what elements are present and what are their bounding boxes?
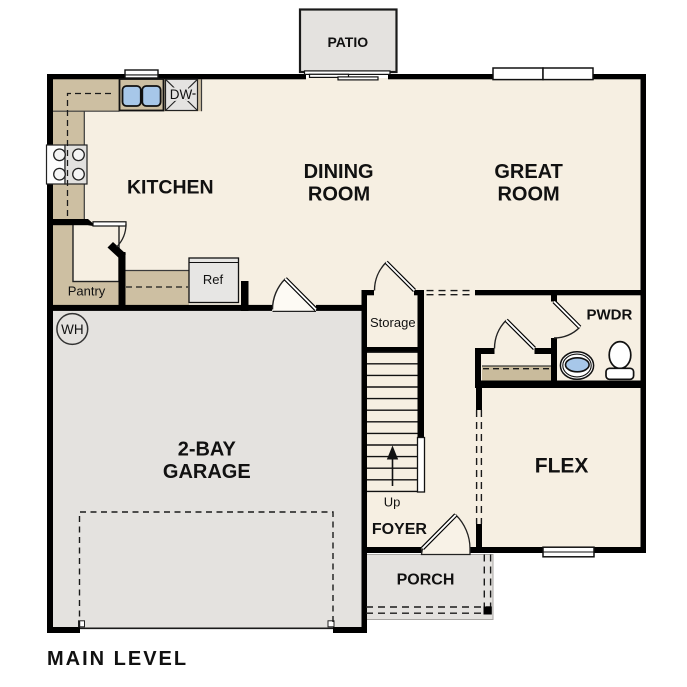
svg-text:FLEX: FLEX [535, 455, 589, 478]
svg-text:GREAT: GREAT [494, 161, 563, 183]
svg-text:Ref: Ref [203, 272, 224, 287]
svg-text:PORCH: PORCH [397, 572, 455, 589]
svg-text:DW: DW [170, 87, 193, 102]
svg-text:WH: WH [61, 322, 84, 337]
svg-text:PWDR: PWDR [586, 307, 632, 324]
svg-text:KITCHEN: KITCHEN [127, 177, 214, 199]
svg-text:2-BAY: 2-BAY [178, 439, 237, 461]
svg-text:GARAGE: GARAGE [163, 461, 251, 483]
svg-text:Pantry: Pantry [68, 284, 106, 299]
svg-text:ROOM: ROOM [308, 184, 370, 206]
svg-text:MAIN LEVEL: MAIN LEVEL [47, 648, 188, 670]
svg-text:Storage: Storage [370, 315, 416, 330]
svg-text:PATIO: PATIO [327, 34, 368, 50]
svg-text:Up: Up [384, 495, 401, 510]
svg-text:FOYER: FOYER [372, 521, 428, 538]
svg-text:DINING: DINING [304, 161, 374, 183]
svg-text:ROOM: ROOM [497, 184, 559, 206]
